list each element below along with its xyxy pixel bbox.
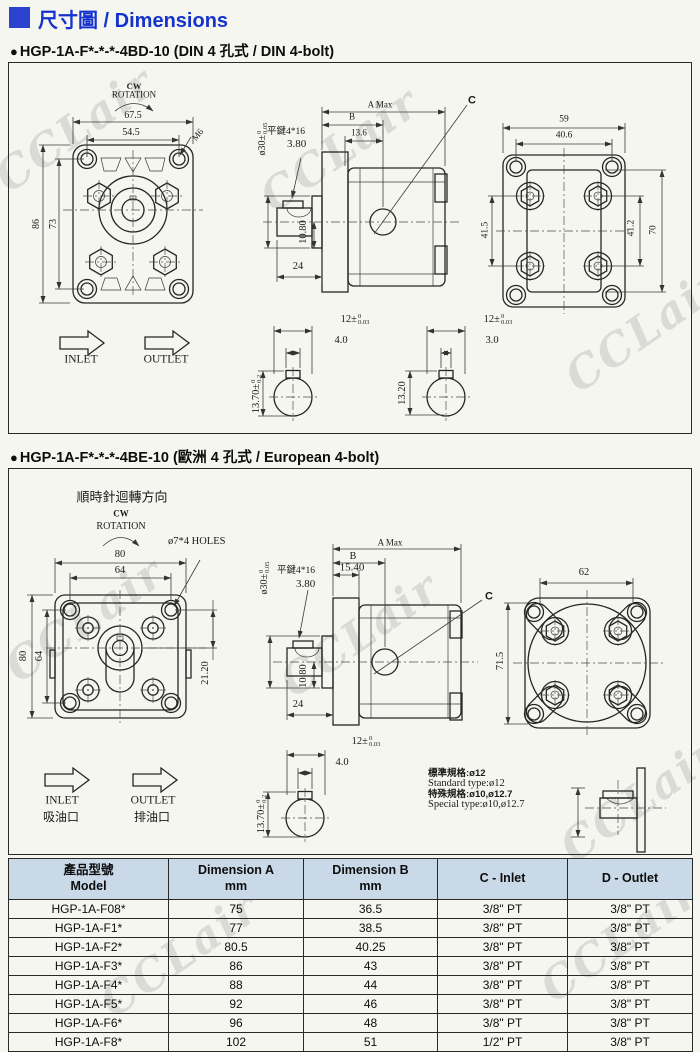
table-cell-c: 3/8" PT [438,938,568,957]
s1-front-view-drawing [39,104,203,356]
s2-holes-label: ø7*4 HOLES [168,537,225,548]
table-cell-b: 36.5 [304,900,438,919]
s2-outlet-zh-label: 排油口 [134,811,170,823]
table-body: HGP-1A-F08*7536.53/8" PT3/8" PTHGP-1A-F1… [9,900,693,1052]
s2-shaft-end-drawing [263,788,329,842]
s2-dim-71-5: 71.5 [496,652,507,670]
bullet-icon: ● [10,44,18,59]
s1-dim-4-0: 4.0 [334,336,347,347]
s1-rotation-label: ROTATION [112,91,156,100]
table-cell-d: 3/8" PT [568,976,693,995]
s1-shaft-end-standard [258,326,317,421]
bullet-icon: ● [10,450,18,465]
s1-dim-13-70: 13.70±00.2 [251,375,263,414]
s2-spec-en-standard: Standard type:ø12 [428,779,505,790]
s1-dim-12-tol: 12±00.03 [341,314,370,326]
s1-dim-a-max: A Max [368,101,393,110]
table-row: HGP-1A-F5*92463/8" PT3/8" PT [9,995,693,1014]
s1-dim-73: 73 [49,219,59,229]
table-cell-d: 3/8" PT [568,995,693,1014]
s1-inlet-label: INLET [64,354,97,366]
s2-dim-21-20: 21.20 [201,661,212,685]
table-cell-a: 77 [169,919,304,938]
table-row: HGP-1A-F1*7738.53/8" PT3/8" PT [9,919,693,938]
s2-dim-4-0: 4.0 [335,758,348,769]
col-header-model: 產品型號Model [9,859,169,900]
s2-cw-zh-label: 順時針迴轉方向 [76,491,167,504]
table-cell-c: 3/8" PT [438,900,568,919]
s1-dim-40-6: 40.6 [556,131,573,141]
table-cell-b: 40.25 [304,938,438,957]
s2-inlet-zh-label: 吸油口 [43,811,79,823]
s1-key-label: 平鍵4*16 [267,128,305,138]
s1-dim-70: 70 [649,225,659,235]
table-cell-b: 51 [304,1033,438,1052]
s2-flange-side-drawing [571,768,666,852]
s2-rotation-label: ROTATION [96,522,145,532]
s2-dim-10-80: 10.80 [299,664,310,688]
table-cell-model: HGP-1A-F4* [9,976,169,995]
table-cell-b: 43 [304,957,438,976]
section1-title-text: HGP-1A-F*-*-*-4BD-10 (DIN 4 孔式 / DIN 4-b… [20,44,334,60]
col-header-dim-a: Dimension Amm [169,859,304,900]
table-cell-a: 88 [169,976,304,995]
table-cell-model: HGP-1A-F1* [9,919,169,938]
table-row: HGP-1A-F8*102511/2" PT3/8" PT [9,1033,693,1052]
table-cell-c: 3/8" PT [438,919,568,938]
table-cell-c: 3/8" PT [438,1014,568,1033]
s2-dim-a-max: A Max [378,539,403,548]
s1-dim-41-5: 41.5 [481,222,491,239]
s2-dim-80: 80 [115,550,126,561]
table-cell-model: HGP-1A-F8* [9,1033,169,1052]
table-cell-c: 3/8" PT [438,976,568,995]
s1-outlet-label: OUTLET [144,354,189,366]
table-cell-d: 3/8" PT [568,938,693,957]
s2-dim-64: 64 [115,566,126,577]
col-header-c-inlet: C - Inlet [438,859,568,900]
table-cell-model: HGP-1A-F6* [9,1014,169,1033]
table-row: HGP-1A-F3*86433/8" PT3/8" PT [9,957,693,976]
outlet-arrow-icon [133,768,177,792]
table-cell-a: 102 [169,1033,304,1052]
s1-dim-13-6: 13.6 [351,129,367,138]
s1-dim-54-5: 54.5 [122,128,140,138]
section2-title-text: HGP-1A-F*-*-*-4BE-10 (歐洲 4 孔式 / European… [20,450,379,466]
table-cell-c: 3/8" PT [438,957,568,976]
col-header-dim-b: Dimension Bmm [304,859,438,900]
s2-dim-80-v: 80 [19,651,30,662]
inlet-arrow-icon [60,331,104,355]
s1-dim-59: 59 [559,115,569,125]
table-cell-model: HGP-1A-F5* [9,995,169,1014]
s2-dim-b: B [350,552,357,562]
s1-dim-3-80: 3.80 [287,139,306,150]
s2-dim-13-70: 13.70±00.2 [256,795,268,834]
s1-dim-24: 24 [293,262,304,273]
s2-dim-shaft-dia: ø30±00.05 [259,562,271,595]
s1-dim-10-80: 10.80 [299,220,310,244]
s2-dim-62: 62 [579,568,590,579]
table-cell-d: 3/8" PT [568,919,693,938]
table-cell-a: 92 [169,995,304,1014]
s2-dim-64-v: 64 [35,651,46,662]
s1-dim-3-0: 3.0 [485,336,498,347]
s1-dim-67-5: 67.5 [124,111,142,121]
table-cell-b: 46 [304,995,438,1014]
s2-rear-view-drawing [504,578,663,736]
s2-dim-3-80: 3.80 [296,579,315,590]
table-row: HGP-1A-F2*80.540.253/8" PT3/8" PT [9,938,693,957]
s1-rear-view-drawing [488,123,666,314]
table-cell-b: 48 [304,1014,438,1033]
table-cell-b: 38.5 [304,919,438,938]
table-cell-a: 80.5 [169,938,304,957]
s1-dim-86: 86 [32,219,42,229]
inlet-arrow-icon [45,768,89,792]
table-cell-d: 3/8" PT [568,1014,693,1033]
dimension-table: 產品型號Model Dimension Amm Dimension Bmm C … [8,858,693,1052]
s2-dim-12-tol: 12±00.03 [352,736,381,748]
s2-spec-en-special: Special type:ø10,ø12.7 [428,800,525,811]
section2-title: ●HGP-1A-F*-*-*-4BE-10 (歐洲 4 孔式 / Europea… [10,446,379,467]
s1-dim-12-tol-alt: 12±00.03 [484,314,513,326]
s1-dim-13-20: 13.20 [398,381,409,405]
table-row: HGP-1A-F08*7536.53/8" PT3/8" PT [9,900,693,919]
s2-outlet-label: OUTLET [131,795,176,807]
table-cell-model: HGP-1A-F2* [9,938,169,957]
s2-key-label: 平鍵4*16 [277,567,315,577]
table-cell-c: 3/8" PT [438,995,568,1014]
table-row: HGP-1A-F4*88443/8" PT3/8" PT [9,976,693,995]
s1-dim-41-2: 41.2 [627,220,637,237]
table-cell-model: HGP-1A-F3* [9,957,169,976]
outlet-arrow-icon [145,331,189,355]
table-cell-b: 44 [304,976,438,995]
table-cell-c: 1/2" PT [438,1033,568,1052]
table-cell-a: 96 [169,1014,304,1033]
table-header-row: 產品型號Model Dimension Amm Dimension Bmm C … [9,859,693,900]
section1-title: ●HGP-1A-F*-*-*-4BD-10 (DIN 4 孔式 / DIN 4-… [10,40,334,61]
s2-dim-15-40: 15.40 [340,563,365,574]
s2-dim-24: 24 [293,700,304,711]
s1-port-c-label: C [468,96,476,107]
page-title: 尺寸圖 / Dimensions [38,4,228,33]
s1-shaft-end-alternate [405,326,470,421]
table-cell-a: 86 [169,957,304,976]
s2-inlet-label: INLET [45,795,78,807]
table-cell-d: 3/8" PT [568,900,693,919]
table-cell-d: 3/8" PT [568,957,693,976]
table-cell-d: 3/8" PT [568,1033,693,1052]
s2-port-c-label: C [485,592,493,603]
s2-cw-label: CW [113,510,129,519]
table-cell-model: HGP-1A-F08* [9,900,169,919]
table-cell-a: 75 [169,900,304,919]
table-row: HGP-1A-F6*96483/8" PT3/8" PT [9,1014,693,1033]
col-header-d-outlet: D - Outlet [568,859,693,900]
header-accent-square [9,7,30,28]
s1-dim-b: B [349,113,355,122]
